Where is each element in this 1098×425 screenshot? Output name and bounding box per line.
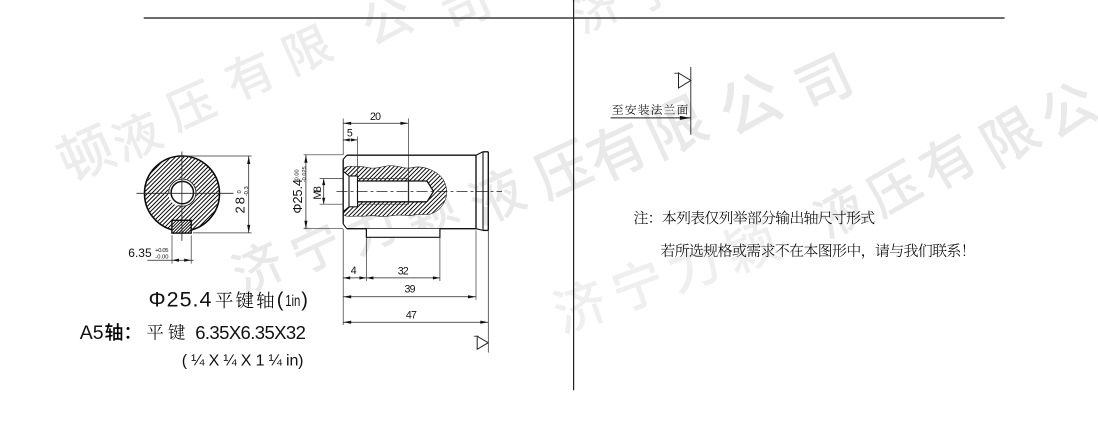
svg-text:4: 4 xyxy=(351,265,357,277)
svg-text:32: 32 xyxy=(398,266,409,278)
svg-text:-0.3: -0.3 xyxy=(244,186,250,196)
svg-text:1in: 1in xyxy=(285,293,300,310)
svg-text:M8: M8 xyxy=(312,186,324,200)
svg-text:(: ( xyxy=(277,290,284,312)
svg-text:Φ25.4: Φ25.4 xyxy=(149,288,212,312)
svg-text:+0.05: +0.05 xyxy=(155,248,168,254)
svg-text:0: 0 xyxy=(237,190,243,193)
svg-text:20: 20 xyxy=(370,111,381,123)
svg-text:-0.00: -0.00 xyxy=(294,169,300,182)
svg-text:6.35X6.35X32: 6.35X6.35X32 xyxy=(195,322,306,343)
svg-text:-0.025: -0.025 xyxy=(302,166,308,182)
svg-text:39: 39 xyxy=(405,284,416,296)
svg-text:47: 47 xyxy=(406,310,417,322)
svg-text:5: 5 xyxy=(347,128,353,140)
svg-text:Φ25.4: Φ25.4 xyxy=(291,179,305,214)
svg-text:A5: A5 xyxy=(80,322,104,344)
svg-text:( ¼ X ¼ X 1 ¼ in): ( ¼ X ¼ X 1 ¼ in) xyxy=(182,353,304,370)
svg-text:-0.00: -0.00 xyxy=(155,254,168,260)
svg-text:6.35: 6.35 xyxy=(128,246,152,260)
svg-text:): ) xyxy=(301,290,308,312)
